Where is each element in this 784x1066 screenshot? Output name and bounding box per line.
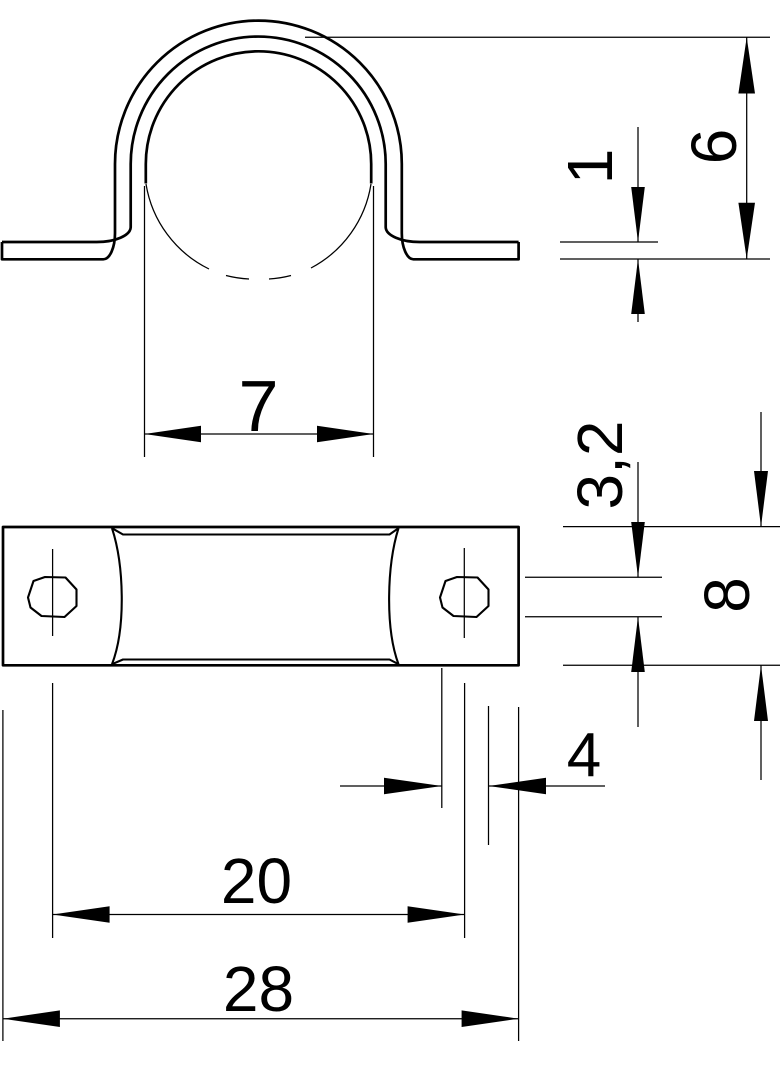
dimension-label-4: 4 — [567, 721, 601, 790]
top-view: 3,2 8 4 20 — [3, 412, 780, 1041]
saddle-strap-left-edge — [112, 528, 122, 664]
arrowhead — [631, 522, 645, 577]
saddle-strap-bottom-edge — [112, 660, 399, 665]
clamp-middle-profile — [2, 37, 519, 242]
clamp-outer-profile — [2, 21, 519, 260]
saddle-strap-right-edge — [389, 528, 398, 664]
arrowhead — [738, 203, 755, 259]
dimension-hole-length: 3,2 — [525, 421, 662, 727]
arrowhead — [631, 187, 645, 242]
dimension-material-thickness: 1 — [554, 127, 658, 322]
arrowhead — [754, 471, 768, 527]
dimension-label-8: 8 — [691, 577, 763, 613]
clamp-inner-profile — [146, 51, 371, 183]
arrowhead — [3, 1010, 60, 1027]
dimension-label-3-2: 3,2 — [564, 421, 636, 510]
dimension-clamp-height: 6 — [305, 37, 770, 259]
front-view: 7 6 1 — [2, 21, 770, 457]
dimension-hole-spacing: 20 — [53, 683, 465, 938]
arrowhead — [738, 37, 755, 93]
dimension-label-6: 6 — [678, 129, 750, 165]
extension-line — [525, 577, 662, 617]
arrowhead — [53, 906, 110, 923]
dimension-label-20: 20 — [221, 845, 292, 917]
arrowhead — [489, 778, 547, 794]
technical-drawing: 7 6 1 — [0, 0, 784, 1066]
drawing-canvas: 7 6 1 — [0, 0, 784, 1066]
dimension-label-7: 7 — [238, 367, 278, 447]
dimension-label-28: 28 — [223, 953, 294, 1025]
arrowhead — [408, 906, 465, 923]
dimension-clamp-inner-width: 7 — [145, 186, 374, 457]
arrowhead — [462, 1010, 519, 1027]
dimension-label-1: 1 — [554, 149, 626, 185]
arrowhead — [384, 778, 442, 794]
dimension-hole-width: 4 — [340, 668, 605, 845]
arrowhead — [754, 665, 768, 721]
arrowhead — [145, 426, 202, 442]
arrowhead — [317, 426, 374, 442]
arrowhead — [631, 617, 645, 672]
saddle-strap-top-edge — [112, 528, 399, 534]
arrowhead — [631, 259, 645, 314]
pipe-circle — [146, 184, 371, 279]
